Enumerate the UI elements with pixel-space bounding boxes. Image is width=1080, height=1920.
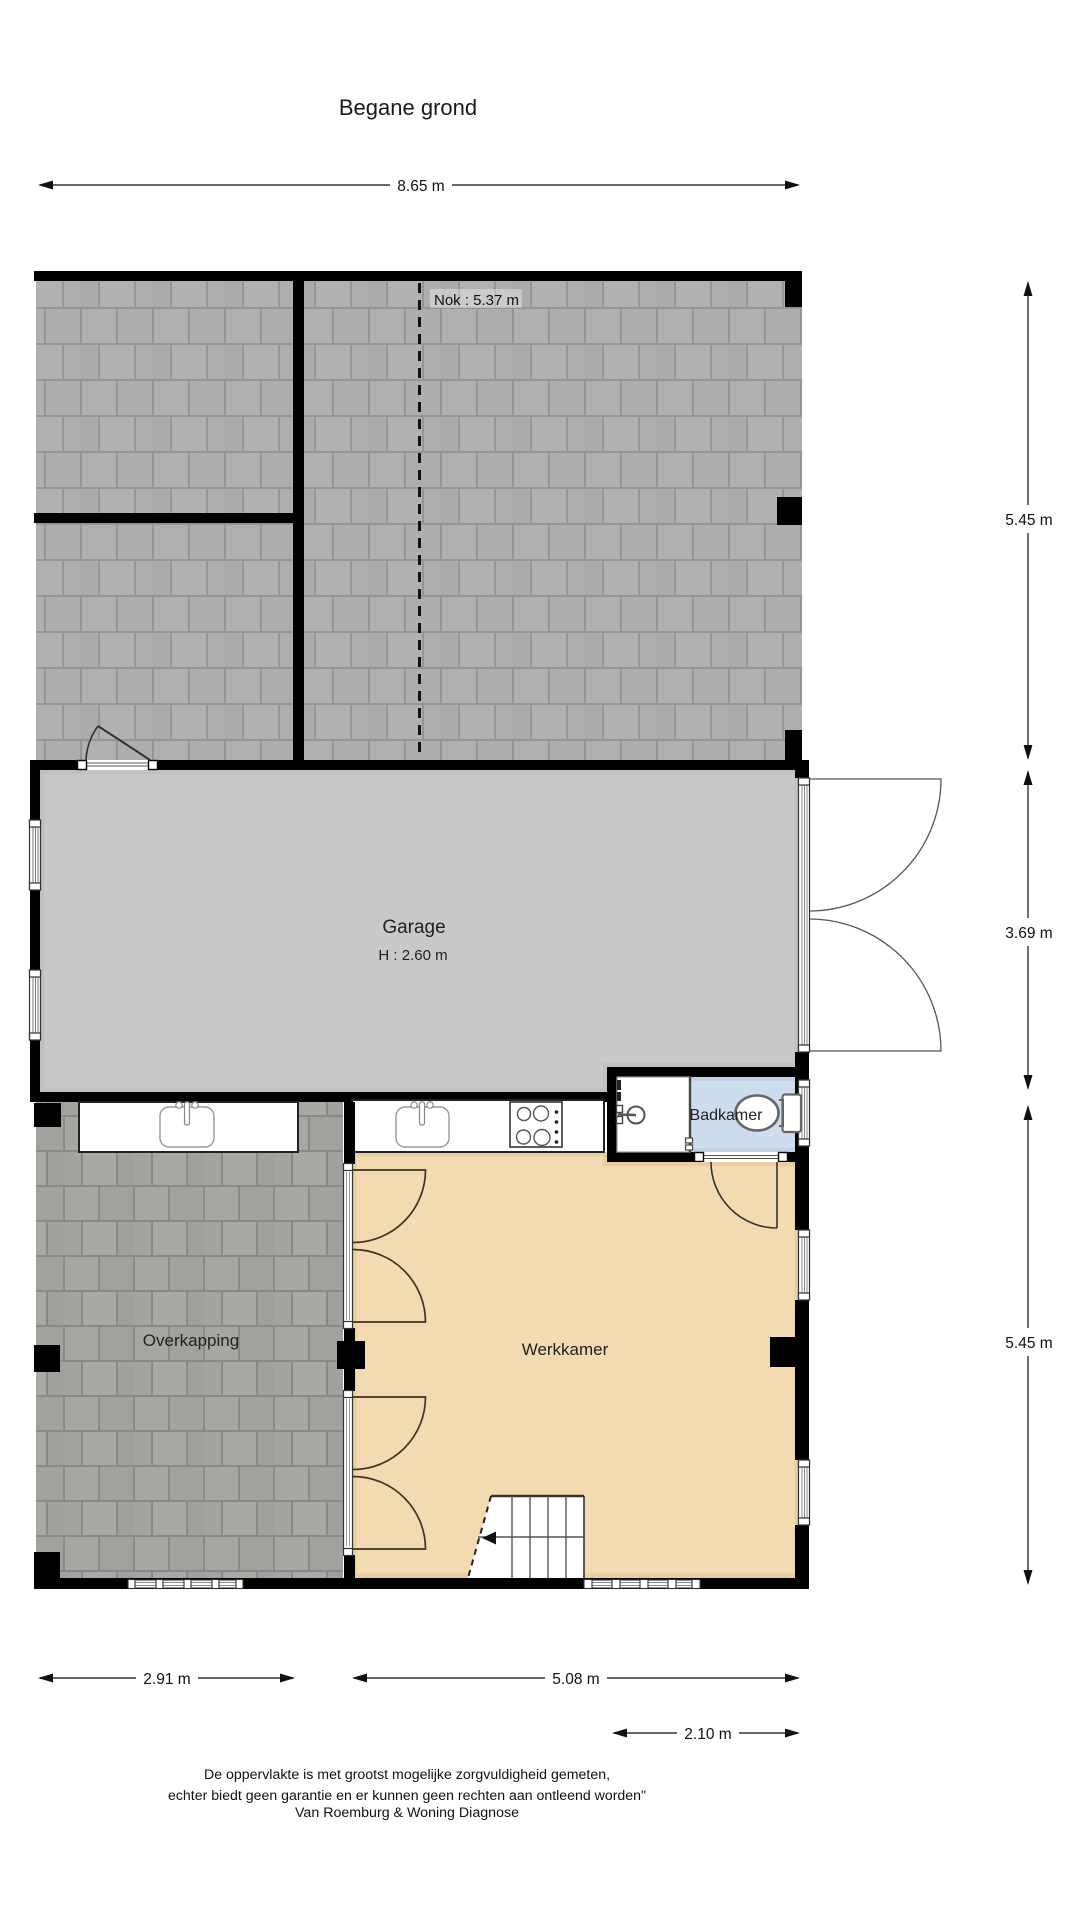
svg-text:De oppervlakte is met grootst: De oppervlakte is met grootst mogelijke … [204,1767,610,1782]
svg-text:3.69 m: 3.69 m [1005,925,1052,942]
svg-text:Nok : 5.37 m: Nok : 5.37 m [434,292,519,309]
svg-text:5.45 m: 5.45 m [1005,1335,1052,1352]
svg-text:5.45 m: 5.45 m [1005,512,1052,529]
svg-text:Badkamer: Badkamer [690,1107,764,1124]
svg-text:echter biedt geen garantie en: echter biedt geen garantie en er kunnen … [168,1788,646,1803]
svg-text:2.91 m: 2.91 m [143,1671,190,1688]
svg-text:Overkapping: Overkapping [143,1331,239,1350]
svg-text:2.10 m: 2.10 m [684,1726,731,1743]
svg-text:Van Roemburg & Woning Diagnose: Van Roemburg & Woning Diagnose [295,1805,519,1820]
svg-text:Werkkamer: Werkkamer [522,1340,609,1359]
svg-text:Garage: Garage [382,917,445,938]
svg-text:8.65 m: 8.65 m [397,178,444,195]
svg-text:5.08 m: 5.08 m [552,1671,599,1688]
svg-text:H : 2.60 m: H : 2.60 m [378,947,447,964]
svg-text:Begane grond: Begane grond [339,95,477,120]
